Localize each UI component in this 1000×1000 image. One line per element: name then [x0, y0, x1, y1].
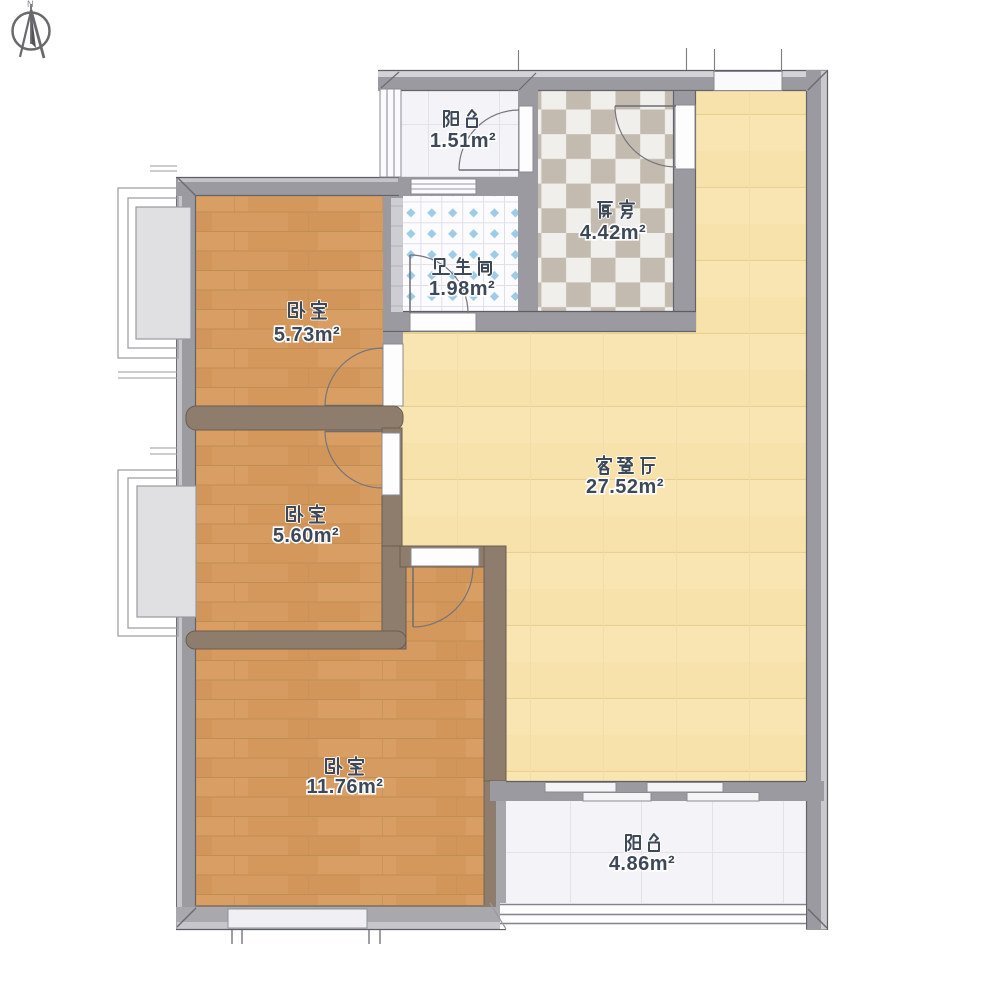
svg-text:N: N: [27, 0, 34, 9]
svg-text:1.98m²: 1.98m²: [429, 278, 495, 300]
svg-text:1.51m²: 1.51m²: [430, 130, 496, 152]
svg-text:5.60m²: 5.60m²: [273, 525, 339, 547]
svg-text:4.42m²: 4.42m²: [580, 222, 646, 244]
svg-text:4.86m²: 4.86m²: [609, 853, 675, 875]
svg-text:5.73m²: 5.73m²: [274, 324, 340, 346]
svg-text:11.76m²: 11.76m²: [307, 776, 384, 798]
svg-text:27.52m²: 27.52m²: [586, 476, 664, 498]
